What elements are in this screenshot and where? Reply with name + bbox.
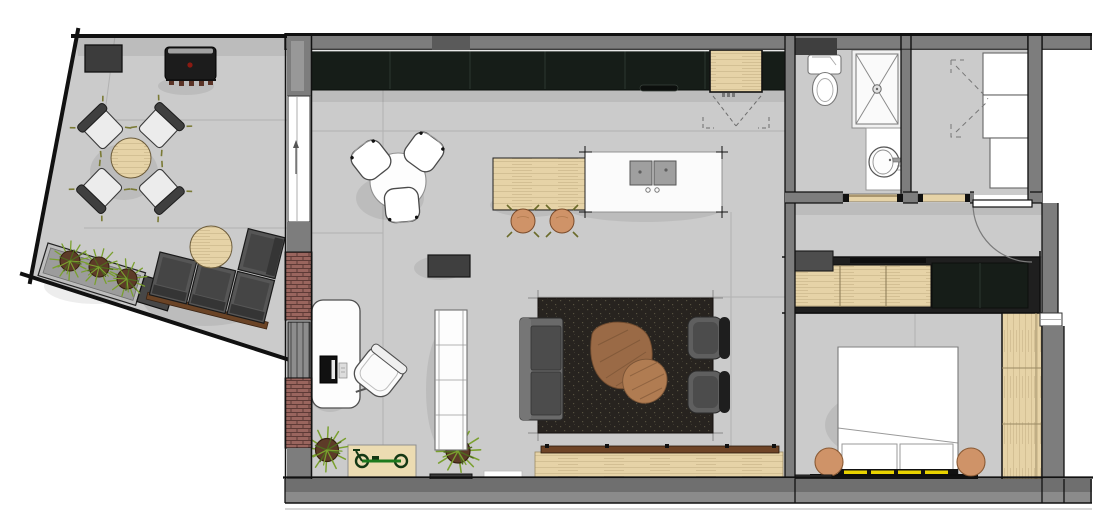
floor-plan xyxy=(0,0,1117,531)
armchair xyxy=(688,371,730,413)
brick-pier xyxy=(285,378,312,448)
pillow xyxy=(900,444,953,471)
appliance-top xyxy=(983,53,1028,95)
bathroom-laundry-wall xyxy=(901,50,911,195)
hallway-right-wall xyxy=(1042,203,1058,313)
bedroom-right-window xyxy=(1040,313,1062,326)
keyboard xyxy=(339,363,347,378)
gray-sofa xyxy=(520,318,563,420)
bathroom-sliding-door[interactable] xyxy=(843,194,903,202)
open-shelf-unit xyxy=(435,310,467,450)
white-desk xyxy=(312,300,360,408)
tall-wood-cabinet xyxy=(710,50,762,92)
kitchen-island xyxy=(579,146,728,218)
storage-box xyxy=(795,251,833,271)
tv-bench xyxy=(535,444,783,477)
bar-stool xyxy=(546,205,578,237)
laundry-right-wall xyxy=(1028,36,1042,203)
round-dining-table xyxy=(111,138,151,178)
cabinet-hinge-marks xyxy=(722,93,735,97)
bike-mat xyxy=(348,445,416,477)
wood-dining-extension xyxy=(493,158,585,210)
round-coffee-table xyxy=(190,226,232,268)
white-cabinet xyxy=(990,138,1028,188)
brick-pier xyxy=(285,252,312,320)
vanity-sink xyxy=(866,128,903,190)
walk-in-shower xyxy=(852,50,902,128)
pillow xyxy=(842,444,897,471)
laundry-sliding-door[interactable] xyxy=(918,194,970,202)
sliding-terrace-door[interactable] xyxy=(288,96,310,222)
white-chair xyxy=(384,187,421,224)
terrace-living-wall xyxy=(285,36,312,490)
bottom-wall xyxy=(283,478,1093,510)
armchair xyxy=(688,317,730,359)
bar-stool xyxy=(507,205,539,237)
cooktop xyxy=(640,85,678,91)
appliance-bottom xyxy=(983,95,1028,138)
bedroom-right-wall xyxy=(1042,326,1064,478)
living-bedroom-wall xyxy=(785,36,795,478)
floor-plan-canvas xyxy=(0,0,1117,531)
dark-ottoman xyxy=(428,255,470,277)
wall-planter xyxy=(85,45,122,72)
wardrobe-row xyxy=(782,251,1046,319)
round-nightstand xyxy=(957,448,985,476)
radiator xyxy=(288,322,310,378)
bbq-grill xyxy=(165,47,216,86)
round-nightstand xyxy=(815,448,843,476)
